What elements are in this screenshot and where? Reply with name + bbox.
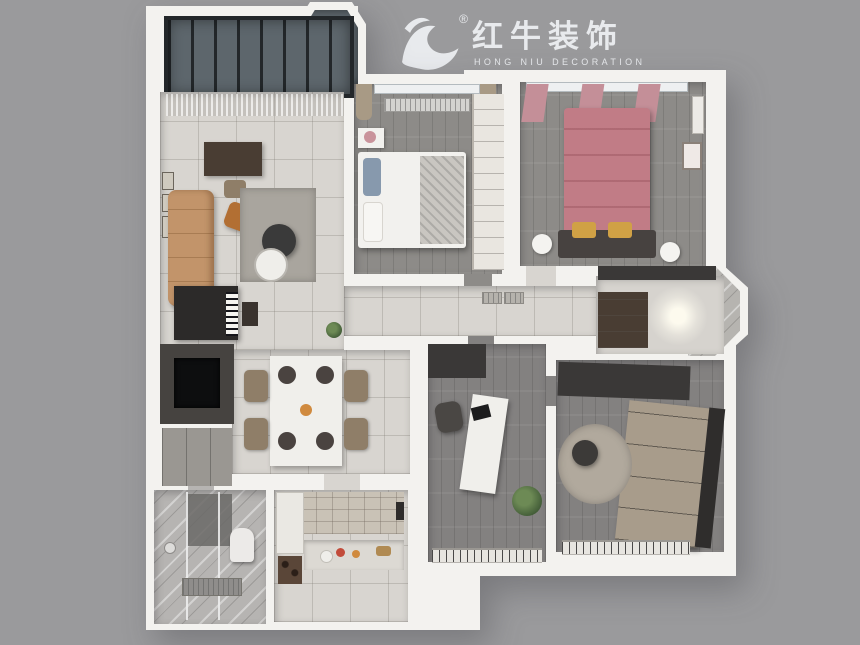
bedside-lamp [364,131,376,143]
dining-chair [244,370,268,402]
kitchen-tall-cabinet [276,492,304,554]
study-window-railing [432,548,542,563]
coffee-tray [254,248,288,282]
dining-chair [244,418,268,450]
shower-wall-panel [186,494,232,546]
living-sheer-curtain [166,94,344,116]
piano-keys [226,292,238,336]
placemat [316,366,334,384]
plate [320,550,333,563]
placemat [278,366,296,384]
kitchen-switch-panel [396,502,404,520]
floorplan-render [128,4,762,640]
wall-art-frame [162,172,174,190]
master-window [526,82,688,92]
tv-screen [174,358,220,408]
bread-basket [376,546,391,556]
floor-drain [182,578,242,596]
placemat [316,432,334,450]
living-desk [204,142,262,176]
food-item-orange [352,550,360,558]
master-nightstand-lamp [660,242,680,262]
piano-bench [242,302,258,326]
hallway-floor [344,286,596,336]
bedroom3-chair [572,440,598,466]
entry-shoe-cabinet [598,292,648,348]
toilet [230,528,254,562]
living-plant [326,322,342,338]
master-pillow-yellow [572,222,596,238]
bedroom3-round-rug [558,424,632,504]
food-item-red [336,548,345,557]
ceiling-vent [504,292,524,304]
study-chair [434,400,465,434]
study-door-opening [468,336,494,344]
study-plant [512,486,542,516]
shower-glass-partition [186,492,188,620]
shower-glass-partition [218,492,220,620]
balcony-window [164,16,354,98]
radiator [384,98,470,112]
kitchen-wall-tiles [300,492,404,534]
master-pillow-yellow [608,222,632,238]
bed2-pillow [363,158,381,196]
bedroom2-window [374,84,480,94]
kitchen-door-opening [324,474,360,490]
placemat [278,432,296,450]
bed2-blanket [420,156,464,244]
master-bed-duvet [564,108,650,234]
bedroom2-curtain [356,84,372,120]
bedroom2-door-opening [464,274,492,286]
study-cabinet [428,344,486,378]
entry-overhead-cabinet [598,266,716,280]
table-centerpiece [300,404,312,416]
master-nightstand-lamp [532,234,552,254]
page-background: { "page": { "background": "#9a9a9c" }, "… [0,0,860,645]
storage-cabinet [162,428,232,486]
dining-chair [344,370,368,402]
bedroom2-wardrobe [472,94,504,270]
master-wall-art [682,142,702,170]
ceiling-vent [482,292,502,304]
bedroom3-door-opening [546,376,556,406]
bedroom3-window-railing [562,540,690,555]
dining-chair [344,418,368,450]
master-door-opening [526,266,556,286]
wine-rack [278,556,302,584]
bed2-pillow [363,202,383,242]
entry-chandelier-glow [648,286,708,346]
shower-head [164,542,176,554]
bedroom3-overhead-cabinet [557,362,690,401]
ac-unit [692,96,704,134]
